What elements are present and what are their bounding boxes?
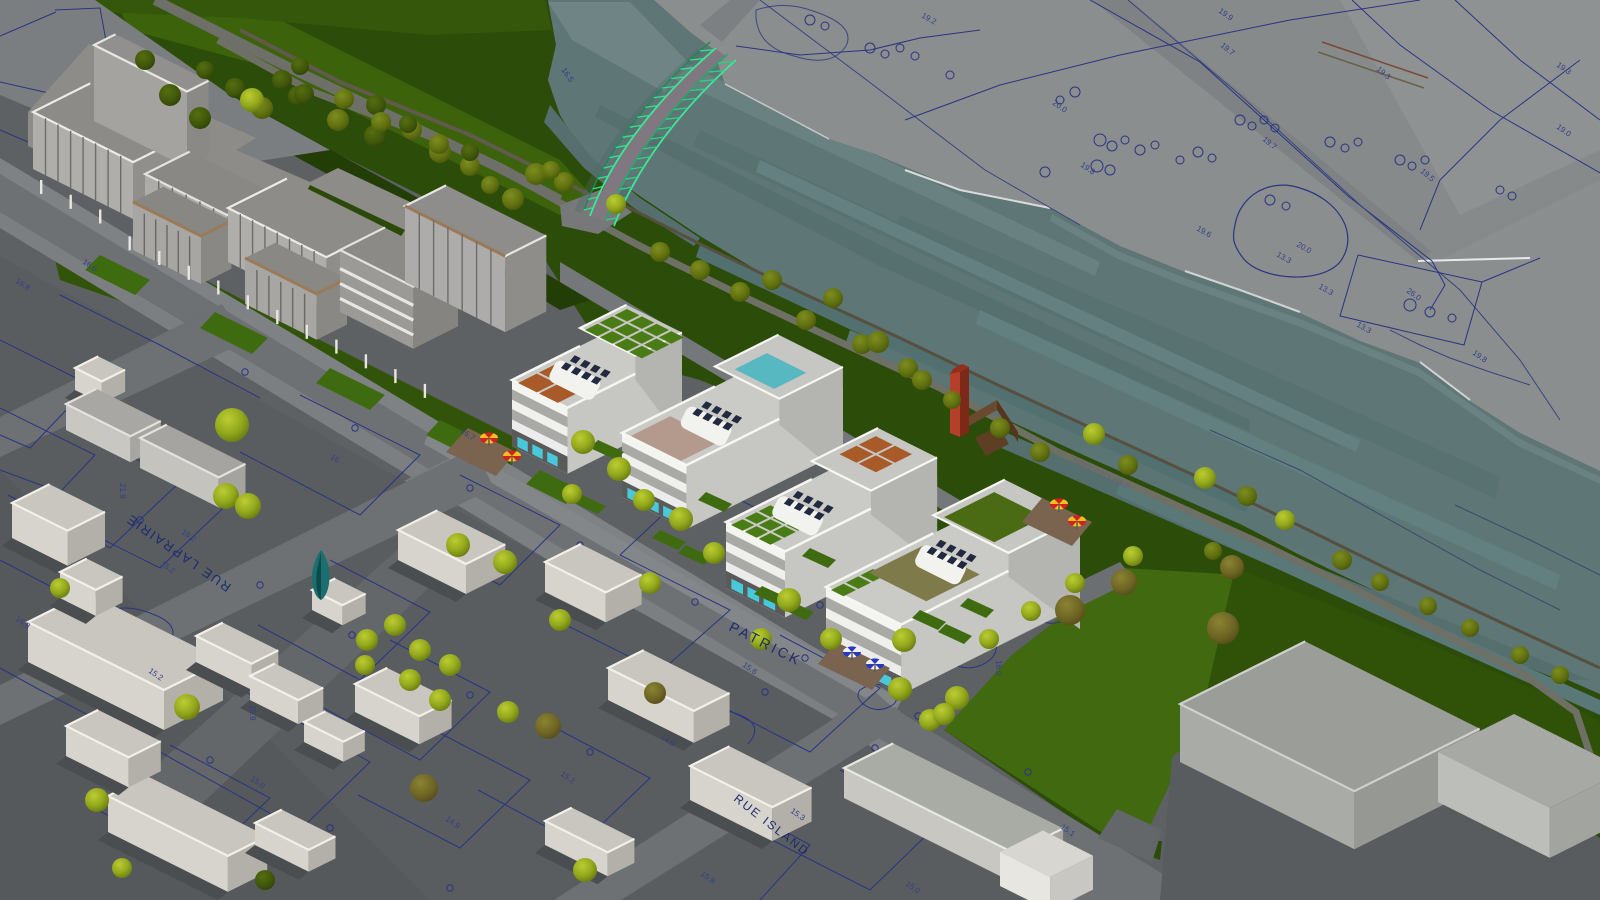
svg-text:15.9: 15.9 (248, 705, 257, 721)
svg-text:21.9: 21.9 (118, 483, 127, 499)
svg-text:16.0: 16.0 (994, 660, 1003, 676)
